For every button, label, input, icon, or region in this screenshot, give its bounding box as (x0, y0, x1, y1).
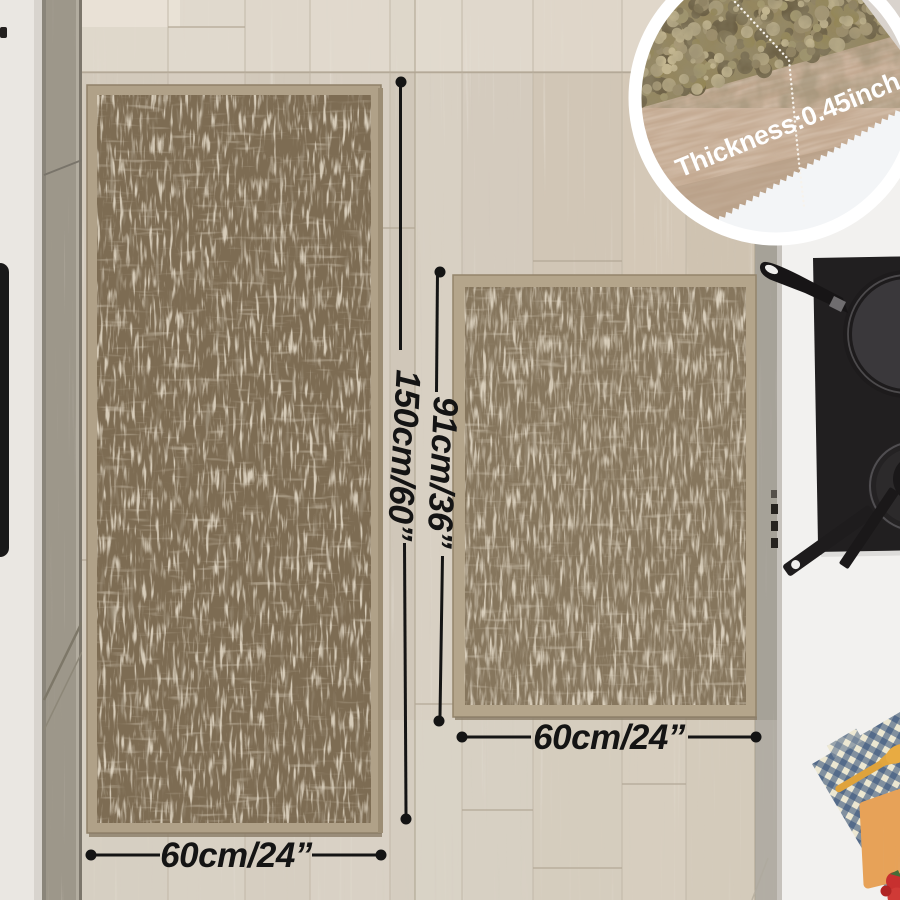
svg-text:60cm/24”: 60cm/24” (160, 836, 313, 875)
svg-text:60cm/24”: 60cm/24” (533, 718, 686, 757)
svg-text:91cm/36”: 91cm/36” (419, 395, 465, 549)
